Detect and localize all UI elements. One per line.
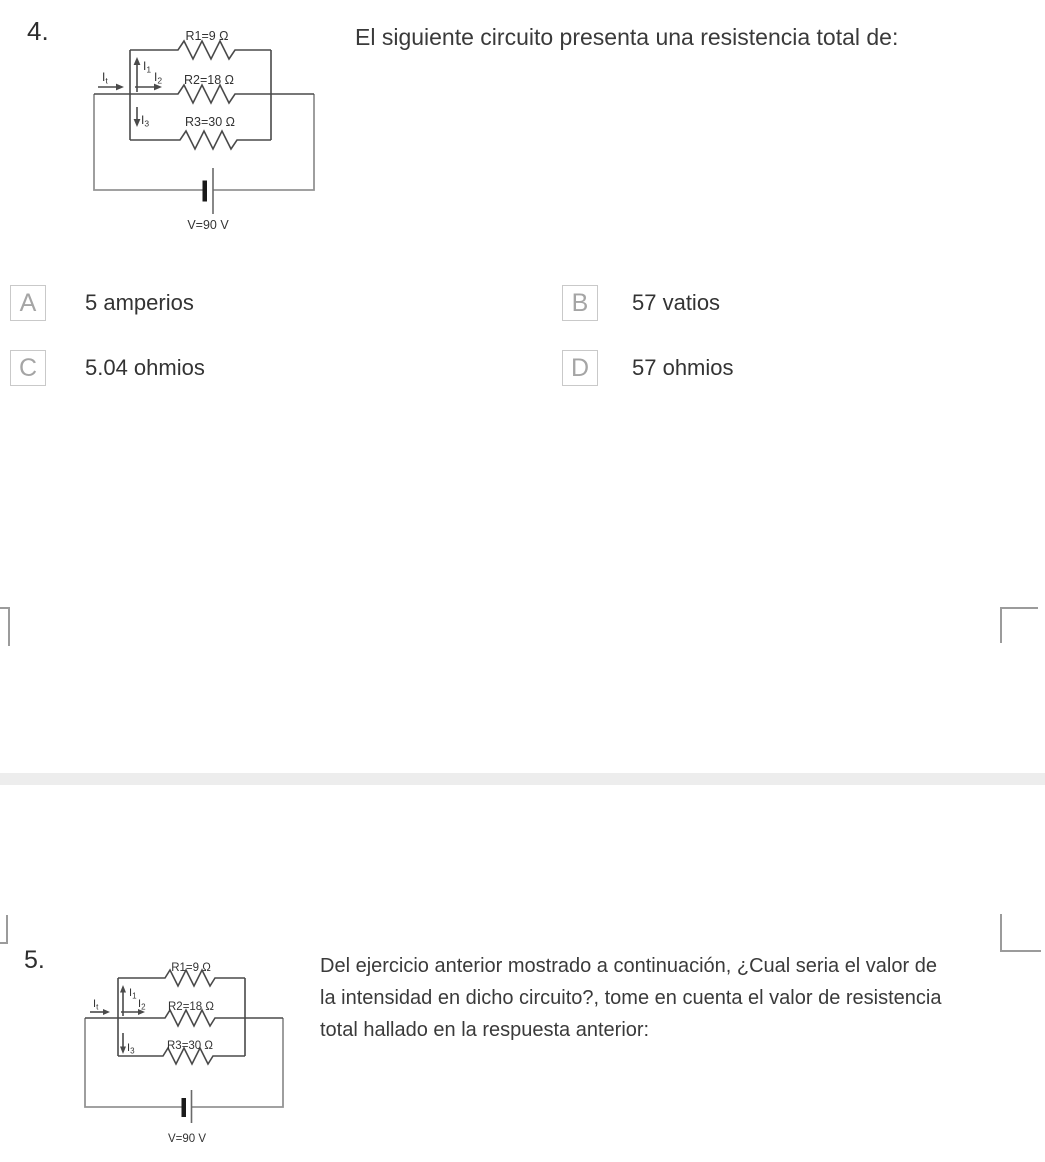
current-label-i2: I2: [138, 998, 146, 1012]
option-b-text: 57 vatios: [632, 290, 720, 316]
option-a-letter-box[interactable]: A: [10, 285, 46, 321]
r2-value-label: R2=18 Ω: [184, 73, 234, 87]
current-arrow-i3-head: [134, 119, 141, 127]
current-arrow-i1-head: [120, 985, 126, 993]
page-corner-mark-top-right: [1000, 607, 1038, 643]
option-c-text: 5.04 ohmios: [85, 355, 205, 381]
r2-value-label: R2=18 Ω: [168, 1001, 214, 1013]
option-c[interactable]: C 5.04 ohmios: [10, 350, 205, 386]
current-arrow-i1-head: [134, 57, 141, 65]
current-arrow-i3-head: [120, 1047, 126, 1055]
r1-value-label: R1=9 Ω: [171, 962, 211, 974]
circuit-diagram-q4: R1=9 Ω R2=18 Ω R3=30 Ω V=90 V I1 It I2 I…: [0, 0, 340, 245]
resistor-r3: [130, 131, 271, 149]
current-arrow-it-head: [116, 84, 124, 91]
quiz-page: 4. R1=9 Ω R2=18 Ω R3=30 Ω V=90 V I1 It I…: [0, 0, 1045, 1162]
option-a[interactable]: A 5 amperios: [10, 285, 194, 321]
option-c-letter-box[interactable]: C: [10, 350, 46, 386]
option-d-letter-box[interactable]: D: [562, 350, 598, 386]
option-b[interactable]: B 57 vatios: [562, 285, 720, 321]
battery-plate-short: [182, 1098, 187, 1117]
outer-wire: [85, 1018, 283, 1107]
r3-value-label: R3=30 Ω: [167, 1040, 213, 1052]
r3-value-label: R3=30 Ω: [185, 115, 235, 129]
page-corner-mark-bottom-right: [1000, 914, 1041, 952]
question-5-text-line-1: Del ejercicio anterior mostrado a contin…: [320, 950, 941, 982]
question-5-text-line-2: la intensidad en dicho circuito?, tome e…: [320, 982, 941, 1014]
option-b-letter-box[interactable]: B: [562, 285, 598, 321]
current-label-i2: I2: [154, 70, 162, 86]
current-arrow-it-head: [103, 1009, 110, 1015]
option-a-text: 5 amperios: [85, 290, 194, 316]
outer-wire: [94, 94, 314, 190]
current-label-i1: I1: [143, 59, 151, 75]
current-label-i3: I3: [141, 113, 149, 129]
question-4-text: El siguiente circuito presenta una resis…: [355, 24, 898, 51]
r1-value-label: R1=9 Ω: [185, 29, 228, 43]
voltage-label: V=90 V: [168, 1133, 206, 1145]
resistor-r2: [94, 85, 314, 103]
circuit-diagram-q5: R1=9 Ω R2=18 Ω R3=30 Ω V=90 V I1 It I2 I…: [0, 940, 330, 1162]
current-label-i3: I3: [127, 1042, 135, 1056]
voltage-label: V=90 V: [187, 218, 229, 232]
current-label-it: It: [102, 70, 108, 86]
option-d[interactable]: D 57 ohmios: [562, 350, 734, 386]
question-5-text: Del ejercicio anterior mostrado a contin…: [320, 950, 941, 1046]
question-5-text-line-3: total hallado en la respuesta anterior:: [320, 1014, 941, 1046]
battery-plate-short: [203, 181, 208, 202]
current-label-it: It: [93, 998, 99, 1012]
option-d-text: 57 ohmios: [632, 355, 734, 381]
current-label-i1: I1: [129, 987, 137, 1001]
page-corner-mark-top-left: [0, 607, 10, 646]
resistor-r1: [130, 41, 271, 59]
page-gap-divider: [0, 773, 1045, 785]
